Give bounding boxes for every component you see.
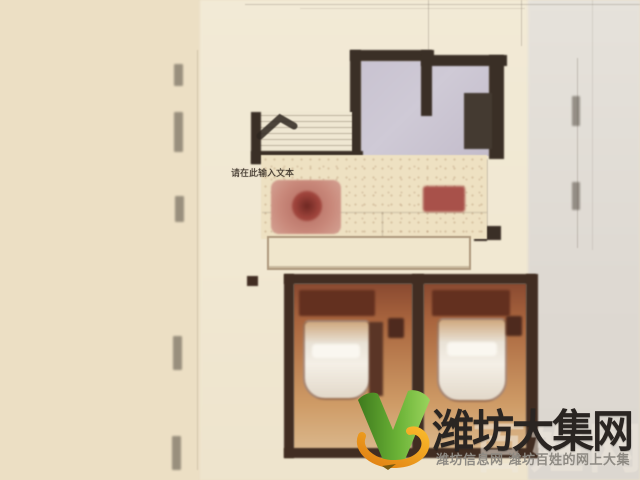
wall-stub [485, 226, 501, 240]
wall-segment [284, 274, 294, 458]
nightstand [506, 316, 522, 336]
nightstand [388, 318, 404, 338]
wall-segment [284, 274, 416, 284]
wall-pillar [464, 93, 492, 149]
wardrobe [369, 322, 383, 396]
pillow [447, 342, 497, 356]
bed [437, 318, 507, 402]
screenshot-canvas: 请在此输入文本 百姓网 潍坊大集网 潍坊信息网 潍坊百姓的网上大集 [0, 0, 640, 480]
dining-table [292, 191, 322, 221]
watermark-tagline: 潍坊信息网 潍坊百姓的网上大集 [436, 449, 630, 468]
bed-headboard [299, 290, 375, 316]
dining-rug [271, 180, 341, 234]
wall-segment [416, 274, 536, 284]
floor-joint-line [382, 212, 383, 239]
bed-headboard [432, 290, 510, 316]
side-table [423, 186, 465, 212]
pillow [312, 344, 360, 358]
wall-stub [247, 276, 258, 286]
site-logo-v-icon [352, 386, 436, 472]
bay-window [267, 236, 471, 270]
text-input-placeholder[interactable]: 请在此输入文本 [231, 166, 294, 179]
door-swing-mark [256, 108, 298, 142]
